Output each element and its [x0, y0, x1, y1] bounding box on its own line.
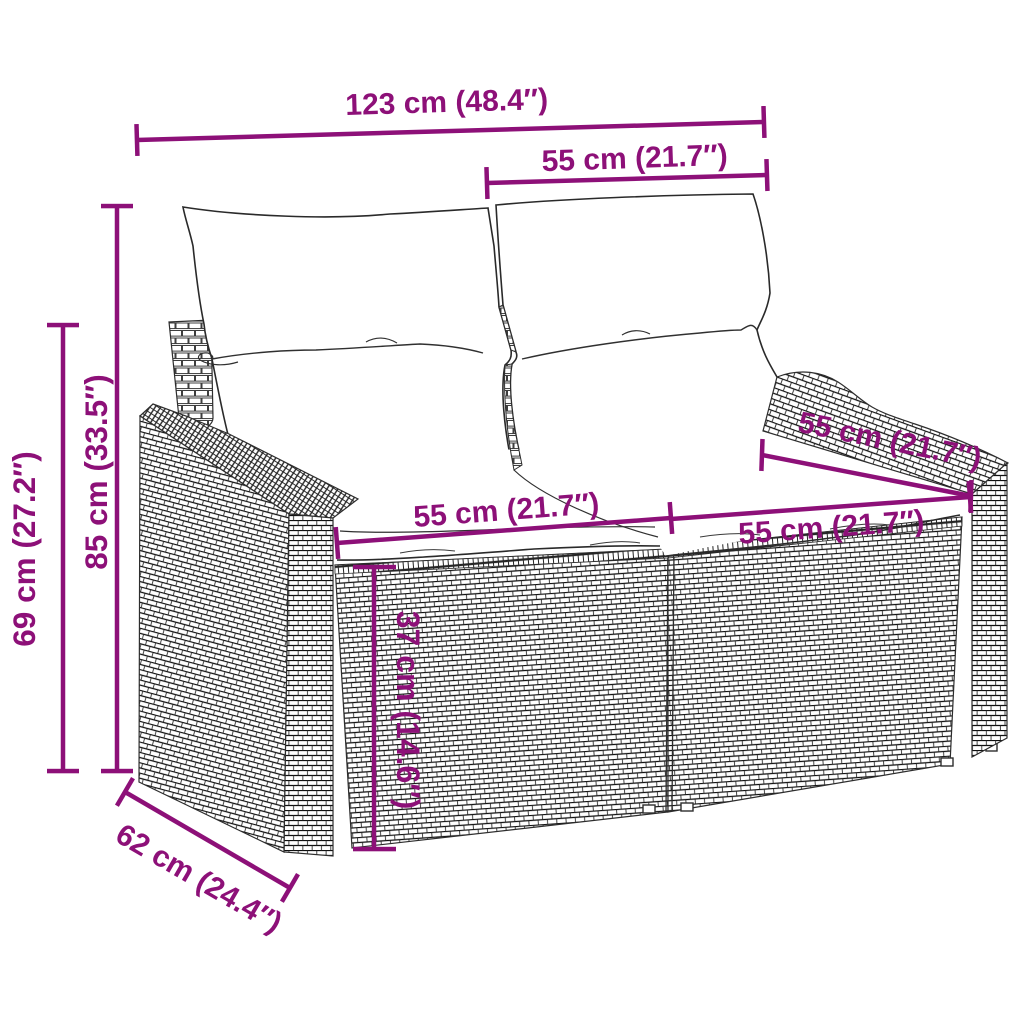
- svg-text:123 cm (48.4″): 123 cm (48.4″): [345, 83, 549, 122]
- svg-text:85 cm (33.5″): 85 cm (33.5″): [78, 374, 114, 569]
- svg-text:37 cm (14.6″): 37 cm (14.6″): [390, 611, 426, 810]
- svg-text:69 cm (27.2″): 69 cm (27.2″): [6, 451, 42, 646]
- svg-text:55 cm (21.7″): 55 cm (21.7″): [541, 139, 728, 178]
